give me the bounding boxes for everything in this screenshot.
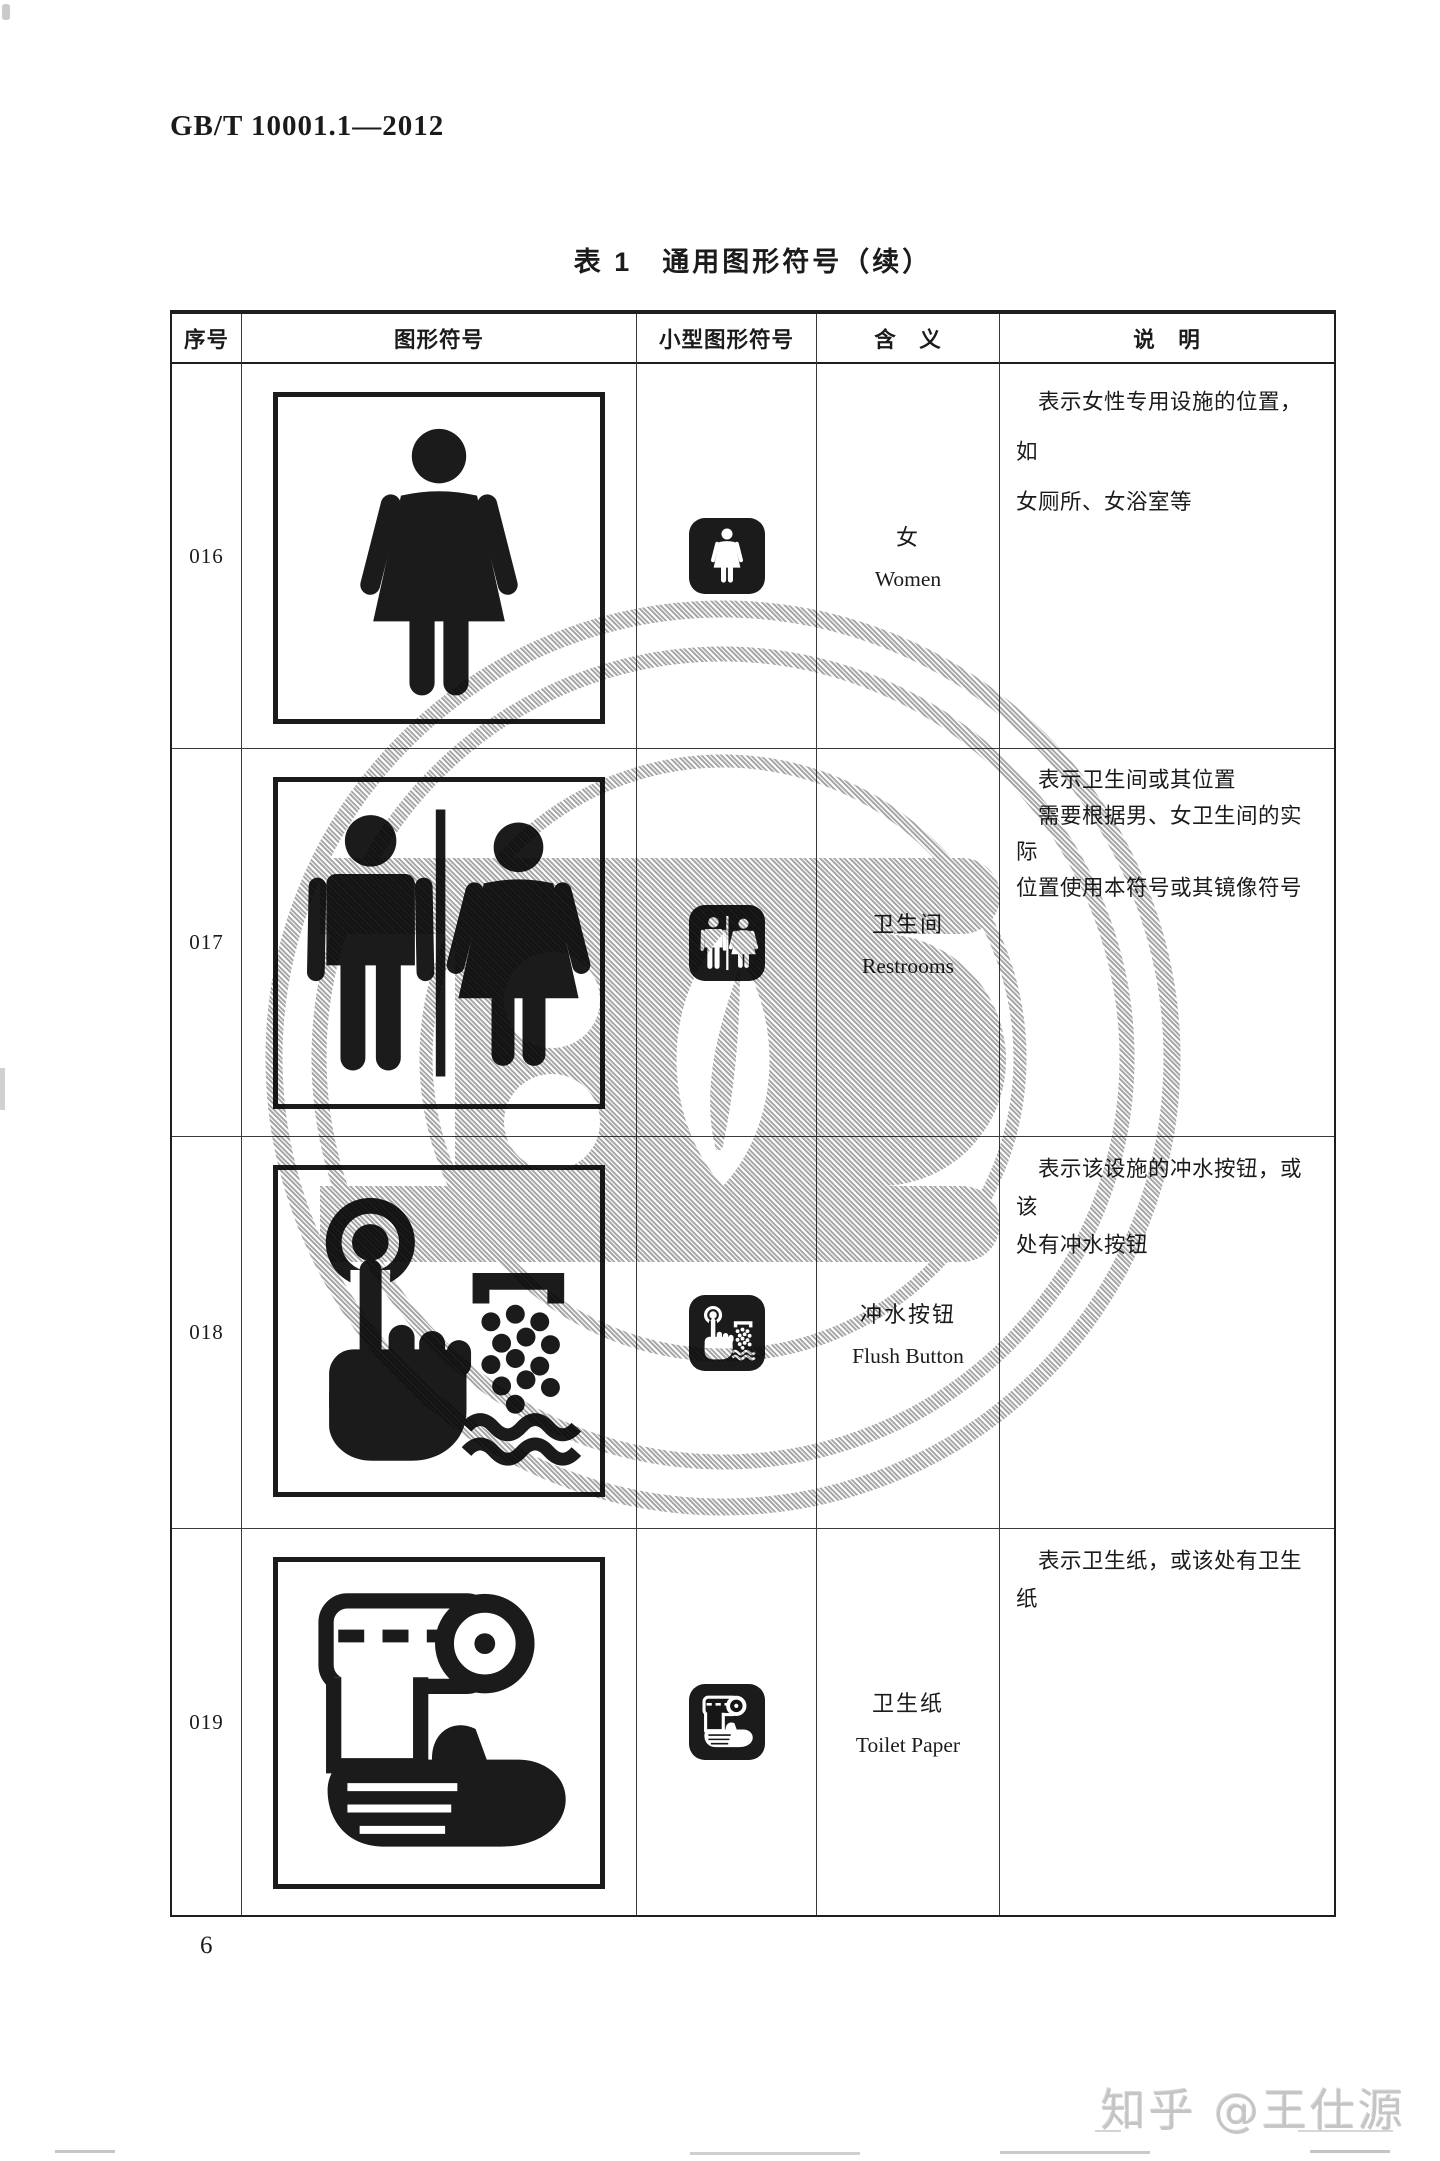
- scan-artifact: [690, 2152, 860, 2155]
- row-016-meaning: 女 Women: [817, 364, 1000, 749]
- standard-code: GB/T 10001.1—2012: [170, 110, 444, 143]
- row-017-description: 表示卫生间或其位置 需要根据男、女卫生间的实际位置使用本符号或其镜像符号: [1000, 749, 1334, 1137]
- column-header-no: 序号: [172, 314, 242, 364]
- restrooms-pictogram-frame: [273, 777, 605, 1109]
- row-018-number: 018: [172, 1137, 242, 1529]
- row-019-description: 表示卫生纸，或该处有卫生纸: [1000, 1529, 1334, 1915]
- toilet-paper-small-icon: [689, 1684, 765, 1760]
- scanned-standard-page: GB/T 10001.1—2012 表 1 通用图形符号（续） 序号 图形符号 …: [0, 0, 1440, 2161]
- row-017-small-symbol-cell: [637, 749, 817, 1137]
- scan-artifact: [0, 1068, 5, 1110]
- meaning-zh: 卫生间: [872, 907, 944, 939]
- row-019-number: 019: [172, 1529, 242, 1915]
- row-016-description: 表示女性专用设施的位置，如女厕所、女浴室等: [1000, 364, 1334, 749]
- scan-artifact: [55, 2150, 115, 2153]
- symbols-table: 序号 图形符号 小型图形符号 含 义 说 明 016 女 Women 表示女性专…: [170, 310, 1336, 1917]
- women-small-icon: [689, 518, 765, 594]
- meaning-zh: 卫生纸: [872, 1686, 944, 1718]
- row-017-number: 017: [172, 749, 242, 1137]
- restrooms-small-icon: [689, 905, 765, 981]
- meaning-zh: 女: [896, 520, 920, 552]
- column-header-meaning: 含 义: [817, 314, 1000, 364]
- row-019-symbol-cell: [242, 1529, 637, 1915]
- row-018-symbol-cell: [242, 1137, 637, 1529]
- women-pictogram-frame: [273, 392, 605, 724]
- toilet-paper-pictogram-frame: [273, 1557, 605, 1889]
- row-018-small-symbol-cell: [637, 1137, 817, 1529]
- meaning-zh: 冲水按钮: [860, 1297, 956, 1329]
- meaning-en: Toilet Paper: [856, 1733, 960, 1758]
- toilet-paper-pictogram: [280, 1564, 598, 1882]
- row-017-meaning: 卫生间 Restrooms: [817, 749, 1000, 1137]
- meaning-en: Restrooms: [862, 954, 954, 979]
- scan-artifact: [1310, 2150, 1390, 2153]
- column-header-symbol: 图形符号: [242, 314, 637, 364]
- row-016-symbol-cell: [242, 364, 637, 749]
- column-header-small-symbol: 小型图形符号: [637, 314, 817, 364]
- restrooms-pictogram: [280, 784, 598, 1102]
- credit-watermark: 知乎 @王仕源: [1101, 2074, 1406, 2139]
- row-016-number: 016: [172, 364, 242, 749]
- row-018-meaning: 冲水按钮 Flush Button: [817, 1137, 1000, 1529]
- row-019-small-symbol-cell: [637, 1529, 817, 1915]
- meaning-en: Flush Button: [852, 1344, 964, 1369]
- row-019-meaning: 卫生纸 Toilet Paper: [817, 1529, 1000, 1915]
- flush-button-pictogram-frame: [273, 1165, 605, 1497]
- table-title: 表 1 通用图形符号（续）: [170, 240, 1336, 279]
- row-016-small-symbol-cell: [637, 364, 817, 749]
- meaning-en: Women: [875, 567, 941, 592]
- scan-artifact: [1000, 2151, 1150, 2154]
- flush-button-small-icon: [689, 1295, 765, 1371]
- row-018-description: 表示该设施的冲水按钮，或该处有冲水按钮: [1000, 1137, 1334, 1529]
- flush-button-pictogram: [280, 1172, 598, 1490]
- women-pictogram: [280, 399, 598, 717]
- scan-artifact: [2, 4, 10, 20]
- page-number: 6: [200, 1932, 213, 1960]
- row-017-symbol-cell: [242, 749, 637, 1137]
- column-header-description: 说 明: [1000, 314, 1334, 364]
